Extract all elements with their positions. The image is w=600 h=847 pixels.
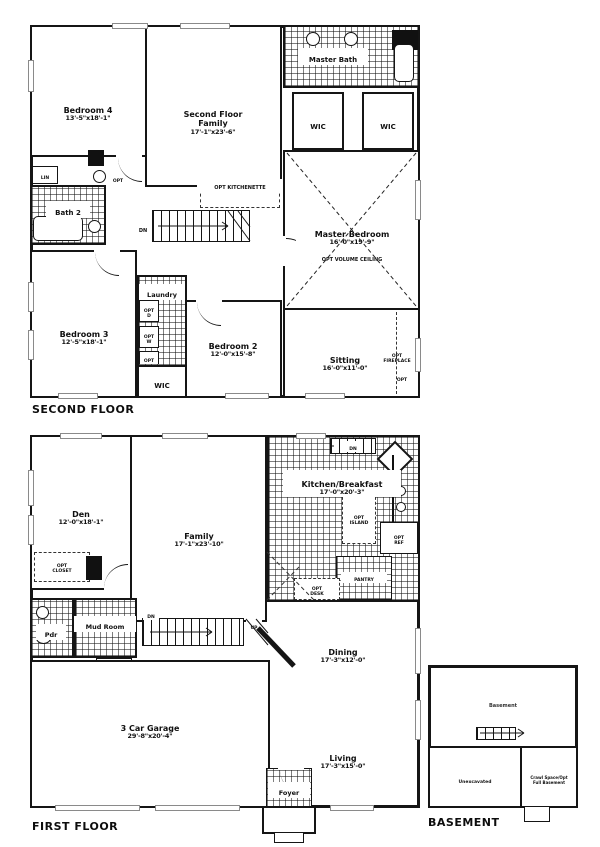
label-wic-hall: WIC	[139, 374, 185, 391]
window-marker	[112, 23, 148, 29]
second-floor-stairs	[152, 210, 250, 242]
chase-block	[86, 556, 102, 580]
chase-block	[88, 150, 104, 166]
label-laundry: Laundry	[139, 284, 185, 300]
window-marker	[180, 23, 230, 29]
label-sf-family: Second Floor Family 17'-1"x23'-6"	[158, 100, 268, 137]
window-marker	[28, 282, 34, 312]
opt-kitchenette-outline	[200, 188, 280, 208]
kitchen-sink2-icon	[396, 502, 406, 512]
annotation-text: PANTRY	[354, 578, 374, 583]
annotation-text: OPT	[144, 359, 154, 364]
room-dims: 17'-3"x12'-0"	[295, 657, 391, 665]
room-name: Basement	[489, 703, 517, 709]
master-sink-icon	[306, 32, 320, 46]
label-mud-room: Mud Room	[74, 616, 136, 632]
room-dims: 13'-5"x18'-1"	[38, 115, 138, 123]
label-dn-basement: DN	[344, 441, 362, 452]
toilet-icon	[88, 220, 101, 233]
label-master-bath: Master Bath	[298, 48, 368, 65]
annotation-text: UP	[251, 626, 258, 631]
annotation-text: LIN	[41, 176, 49, 181]
room-name: WIC	[310, 123, 325, 131]
label-garage: 3 Car Garage 29'-8"x20'-4"	[95, 714, 205, 741]
label-opt-w: OPT W	[140, 329, 158, 346]
room-note: OPT VOLUME CEILING	[296, 257, 408, 263]
garage-door-marker	[55, 805, 140, 811]
room-name: Pdr	[45, 631, 58, 639]
label-master-bedroom: Master Bedroom 16'-0"x19'-9" OPT VOLUME …	[296, 220, 408, 263]
label-crawl-space: Crawl Space/Opt Full Basement	[523, 770, 575, 786]
label-bath2: Bath 2	[46, 201, 90, 218]
master-sink2-icon	[344, 32, 358, 46]
window-marker	[415, 180, 421, 220]
label-bedroom2: Bedroom 2 12'-0"x15'-8"	[185, 332, 281, 359]
window-marker	[415, 700, 421, 740]
window-marker	[28, 60, 34, 92]
room-bedroom4	[30, 25, 147, 157]
label-opt-sink: OPT	[108, 173, 128, 184]
label-wic-right: WIC	[370, 115, 406, 132]
window-marker	[60, 433, 102, 439]
room-dims: 17'-1"x23'-10"	[150, 541, 248, 549]
label-foyer: Foyer	[268, 782, 310, 798]
first-floor-title: FIRST FLOOR	[32, 820, 118, 833]
room-name: Crawl Space/Opt Full Basement	[530, 775, 567, 785]
annotation-text: OPT CLOSET	[52, 564, 71, 575]
room-dims: 17'-3"x15'-0"	[295, 763, 391, 771]
label-opt-corner: OPT	[392, 372, 412, 383]
annotation-text: OPT REF	[394, 536, 404, 547]
room-name: Unexcavated	[459, 780, 492, 785]
room-name: Master Bath	[309, 56, 357, 64]
label-basement-main: Basement	[478, 697, 528, 709]
room-dims: 29'-8"x20'-4"	[95, 733, 205, 741]
label-pantry: PANTRY	[341, 572, 387, 583]
window-marker	[58, 393, 98, 399]
label-opt-desk: OPT DESK	[304, 581, 330, 598]
floor-plan-sheet: Bedroom 4 13'-5"x18'-1" Second Floor Fam…	[0, 0, 600, 847]
annotation-text: OPT W	[144, 335, 154, 346]
label-opt-d: OPT D	[140, 303, 158, 320]
annotation-text: OPT	[397, 378, 407, 383]
label-living: Living 17'-3"x15'-0"	[295, 744, 391, 771]
label-opt-ref: OPT REF	[386, 530, 412, 547]
master-tub-icon	[394, 44, 414, 82]
label-opt-kitchenette: OPT KITCHENETTE	[197, 179, 283, 191]
basement-title: BASEMENT	[428, 816, 500, 829]
room-dims: 12'-0"x18'-1"	[34, 519, 128, 527]
label-opt-closet: OPT CLOSET	[38, 558, 86, 575]
label-dn-ff: DN	[143, 609, 159, 620]
room-dims: 17'-0"x20'-3"	[283, 489, 401, 497]
annotation-text: OPT D	[144, 309, 154, 320]
garage-door-marker	[155, 805, 240, 811]
basement-bump-out	[524, 806, 550, 822]
window-marker	[296, 433, 326, 439]
annotation-text: OPT DESK	[310, 587, 324, 598]
room-dims: 12'-0"x15'-8"	[185, 351, 281, 359]
room-name: Second Floor Family	[184, 110, 243, 129]
label-wic-left: WIC	[300, 115, 336, 132]
bathtub-icon	[33, 216, 83, 241]
room-name: Mud Room	[86, 623, 125, 631]
label-sitting: Sitting 16'-0"x11'-0"	[305, 346, 385, 373]
label-den: Den 12'-0"x18'-1"	[34, 500, 128, 527]
annotation-text: DN	[349, 447, 357, 452]
label-dn-sf: DN	[135, 222, 151, 234]
annotation-text: OPT	[113, 179, 123, 184]
window-marker	[305, 393, 345, 399]
opt-sink-icon	[93, 170, 106, 183]
room-dims: 16'-0"x19'-9"	[296, 239, 408, 247]
label-lin: LIN	[32, 170, 58, 181]
label-unexcavated: Unexcavated	[442, 774, 508, 785]
room-name: WIC	[380, 123, 395, 131]
window-marker	[162, 433, 208, 439]
room-name: WIC	[154, 382, 169, 390]
label-up-ff: UP	[246, 620, 262, 631]
label-kitchen: Kitchen/Breakfast 17'-0"x20'-3"	[283, 470, 401, 497]
annotation-text: DN	[147, 615, 155, 620]
label-opt-fireplace: OPT FIREPLACE	[378, 348, 416, 365]
basement-stairs	[476, 727, 516, 740]
label-bedroom4: Bedroom 4 13'-5"x18'-1"	[38, 96, 138, 123]
annotation-text: OPT KITCHENETTE	[214, 185, 265, 191]
label-bedroom3: Bedroom 3 12'-5"x18'-1"	[34, 320, 134, 347]
window-marker	[225, 393, 269, 399]
label-pdr: Pdr	[36, 624, 66, 640]
room-name: Laundry	[147, 291, 177, 299]
door-gap	[104, 588, 130, 592]
window-marker	[415, 628, 421, 674]
room-dims: 16'-0"x11'-0"	[305, 365, 385, 373]
porch-step	[274, 832, 304, 843]
foyer-porch	[262, 806, 316, 834]
room-dims: 17'-1"x23'-6"	[158, 129, 268, 137]
room-name: Bath 2	[55, 209, 81, 217]
label-family: Family 17'-1"x23'-10"	[150, 522, 248, 549]
room-dims: 12'-5"x18'-1"	[34, 339, 134, 347]
room-name: Foyer	[279, 789, 300, 797]
window-marker	[330, 805, 374, 811]
second-floor-title: SECOND FLOOR	[32, 403, 134, 416]
label-opt-island: OPT ISLAND	[346, 510, 372, 527]
label-dining: Dining 17'-3"x12'-0"	[295, 638, 391, 665]
label-opt-small: OPT	[140, 353, 158, 364]
annotation-text: OPT FIREPLACE	[383, 354, 410, 365]
first-floor-stairs	[142, 618, 244, 646]
annotation-text: OPT ISLAND	[350, 516, 369, 527]
pdr-sink-icon	[36, 606, 49, 619]
annotation-text: DN	[139, 228, 147, 234]
